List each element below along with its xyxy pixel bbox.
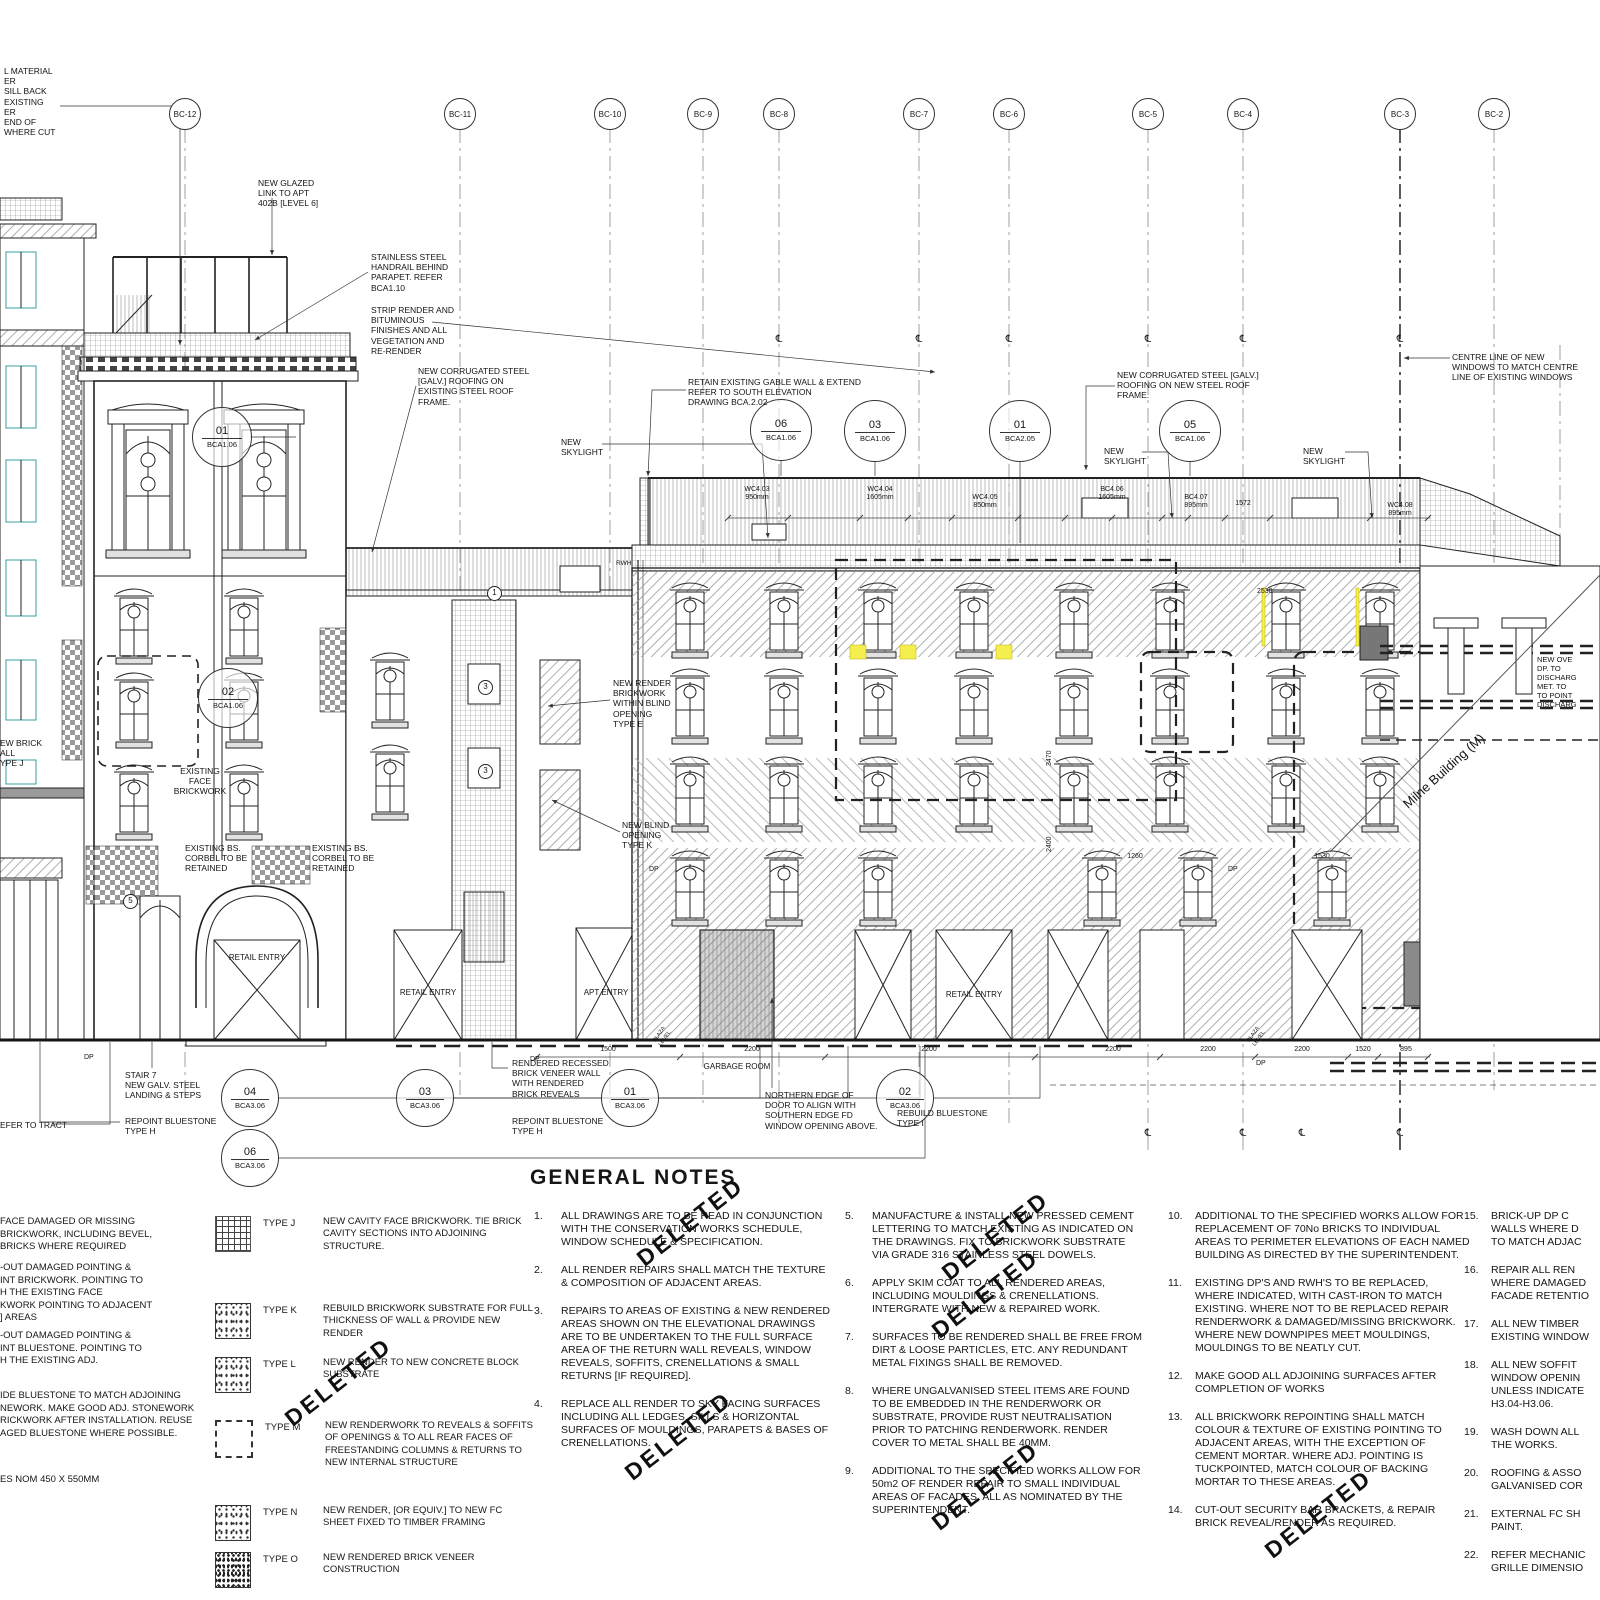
note-item: 9. ADDITIONAL TO THE SPECIFIED WORKS ALL…: [845, 1465, 1143, 1517]
note-text: ALL DRAWINGS ARE TO BE READ IN CONJUNCTI…: [561, 1210, 834, 1249]
general-notes-title: GENERAL NOTES: [530, 1166, 736, 1190]
note-text: ADDITIONAL TO THE SPECIFIED WORKS ALLOW …: [872, 1465, 1143, 1517]
note-number: 10.: [1168, 1210, 1195, 1262]
note-number: 6.: [845, 1277, 872, 1316]
legend-row: TYPE N NEW RENDER, [OR EQUIV.] TO NEW FC…: [215, 1505, 535, 1541]
left-note-block: -OUT DAMAGED POINTING & INT BRICKWORK. P…: [0, 1262, 152, 1325]
note-text: REPAIRS TO AREAS OF EXISTING & NEW RENDE…: [561, 1305, 834, 1383]
note-item: 20. ROOFING & ASSO GALVANISED COR: [1464, 1467, 1600, 1493]
legend-type-label: TYPE K: [263, 1303, 311, 1340]
note-number: 8.: [845, 1385, 872, 1450]
notes-column-1: 1. ALL DRAWINGS ARE TO BE READ IN CONJUN…: [534, 1210, 834, 1450]
note-text: REFER MECHANIC GRILLE DIMENSIO: [1491, 1549, 1586, 1575]
note-text: WHERE UNGALVANISED STEEL ITEMS ARE FOUND…: [872, 1385, 1143, 1450]
note-item: 1. ALL DRAWINGS ARE TO BE READ IN CONJUN…: [534, 1210, 834, 1249]
legend-description: NEW RENDER, [OR EQUIV.] TO NEW FC SHEET …: [323, 1505, 535, 1541]
note-item: 13. ALL BRICKWORK REPOINTING SHALL MATCH…: [1168, 1411, 1470, 1489]
legend-swatch: [215, 1552, 251, 1588]
legend-description: NEW RENDERED BRICK VENEER CONSTRUCTION: [323, 1552, 535, 1588]
note-item: 18. ALL NEW SOFFIT WINDOW OPENIN UNLESS …: [1464, 1359, 1600, 1411]
legend-swatch: [215, 1357, 251, 1393]
note-number: 21.: [1464, 1508, 1491, 1534]
note-item: 19. WASH DOWN ALL THE WORKS.: [1464, 1426, 1600, 1452]
left-note-block: IDE BLUESTONE TO MATCH ADJOINING NEWORK.…: [0, 1390, 194, 1440]
legend-swatch: [215, 1303, 251, 1339]
note-number: 20.: [1464, 1467, 1491, 1493]
note-item: 10. ADDITIONAL TO THE SPECIFIED WORKS AL…: [1168, 1210, 1470, 1262]
note-item: 6. APPLY SKIM COAT TO ALL RENDERED AREAS…: [845, 1277, 1143, 1316]
left-note-block: -OUT DAMAGED POINTING & INT BLUESTONE. P…: [0, 1330, 142, 1368]
legend-type-label: TYPE N: [263, 1505, 311, 1541]
note-text: REPAIR ALL REN WHERE DAMAGED FACADE RETE…: [1491, 1264, 1589, 1303]
legend-description: NEW RENDER TO NEW CONCRETE BLOCK SUBSTRA…: [323, 1357, 535, 1393]
note-item: 15. BRICK-UP DP C WALLS WHERE D TO MATCH…: [1464, 1210, 1600, 1249]
legend-description: NEW RENDERWORK TO REVEALS & SOFFITS OF O…: [325, 1420, 535, 1469]
note-text: MANUFACTURE & INSTALL NEW PRESSED CEMENT…: [872, 1210, 1143, 1262]
note-item: 3. REPAIRS TO AREAS OF EXISTING & NEW RE…: [534, 1305, 834, 1383]
legend-type-label: TYPE L: [263, 1357, 311, 1393]
legend-row: TYPE J NEW CAVITY FACE BRICKWORK. TIE BR…: [215, 1216, 535, 1253]
note-item: 21. EXTERNAL FC SH PAINT.: [1464, 1508, 1600, 1534]
note-text: ALL NEW SOFFIT WINDOW OPENIN UNLESS INDI…: [1491, 1359, 1584, 1411]
note-text: EXISTING DP'S AND RWH'S TO BE REPLACED, …: [1195, 1277, 1470, 1355]
deleted-stamp: DELETED: [280, 1332, 398, 1432]
note-number: 1.: [534, 1210, 561, 1249]
note-text: ALL BRICKWORK REPOINTING SHALL MATCH COL…: [1195, 1411, 1470, 1489]
legend-type-label: TYPE M: [265, 1420, 313, 1469]
note-number: 12.: [1168, 1370, 1195, 1396]
note-text: ALL NEW TIMBER EXISTING WINDOW: [1491, 1318, 1589, 1344]
note-number: 19.: [1464, 1426, 1491, 1452]
note-item: 11. EXISTING DP'S AND RWH'S TO BE REPLAC…: [1168, 1277, 1470, 1355]
legend-description: REBUILD BRICKWORK SUBSTRATE FOR FULL THI…: [323, 1303, 535, 1340]
note-item: 5. MANUFACTURE & INSTALL NEW PRESSED CEM…: [845, 1210, 1143, 1262]
note-text: APPLY SKIM COAT TO ALL RENDERED AREAS, I…: [872, 1277, 1143, 1316]
left-note-block: ES NOM 450 X 550MM: [0, 1474, 99, 1487]
note-text: WASH DOWN ALL THE WORKS.: [1491, 1426, 1579, 1452]
note-number: 16.: [1464, 1264, 1491, 1303]
note-number: 17.: [1464, 1318, 1491, 1344]
note-number: 7.: [845, 1331, 872, 1370]
note-number: 2.: [534, 1264, 561, 1290]
note-number: 5.: [845, 1210, 872, 1262]
note-number: 22.: [1464, 1549, 1491, 1575]
note-number: 9.: [845, 1465, 872, 1517]
note-text: REPLACE ALL RENDER TO SKY FACING SURFACE…: [561, 1398, 834, 1450]
note-number: 15.: [1464, 1210, 1491, 1249]
tower-facade: [86, 381, 346, 1046]
legend-description: NEW CAVITY FACE BRICKWORK. TIE BRICK CAV…: [323, 1216, 535, 1253]
note-text: ALL RENDER REPAIRS SHALL MATCH THE TEXTU…: [561, 1264, 834, 1290]
note-text: CUT-OUT SECURITY BAR BRACKETS, & REPAIR …: [1195, 1504, 1470, 1530]
note-text: BRICK-UP DP C WALLS WHERE D TO MATCH ADJ…: [1491, 1210, 1582, 1249]
legend-swatch: [215, 1505, 251, 1541]
note-text: SURFACES TO BE RENDERED SHALL BE FREE FR…: [872, 1331, 1143, 1370]
legend-swatch: [215, 1420, 253, 1458]
legend-row: TYPE K REBUILD BRICKWORK SUBSTRATE FOR F…: [215, 1303, 535, 1340]
legend-row: TYPE O NEW RENDERED BRICK VENEER CONSTRU…: [215, 1552, 535, 1588]
notes-column-4: 15. BRICK-UP DP C WALLS WHERE D TO MATCH…: [1464, 1210, 1600, 1575]
note-item: 12. MAKE GOOD ALL ADJOINING SURFACES AFT…: [1168, 1370, 1470, 1396]
left-neighbour-building: [0, 198, 96, 1040]
elevation-linework: [0, 0, 1600, 1170]
legend-type-label: TYPE O: [263, 1552, 311, 1588]
mid-band: [346, 548, 636, 1040]
architectural-elevation-sheet: BC-12 BC-11 BC-10 BC-9 BC-8 BC-7 BC-6 BC…: [0, 0, 1600, 1600]
legend-row: TYPE M NEW RENDERWORK TO REVEALS & SOFFI…: [215, 1420, 535, 1469]
tower-rooftop: [78, 257, 358, 381]
legend-row: TYPE L NEW RENDER TO NEW CONCRETE BLOCK …: [215, 1357, 535, 1393]
note-item: 8. WHERE UNGALVANISED STEEL ITEMS ARE FO…: [845, 1385, 1143, 1450]
note-number: 11.: [1168, 1277, 1195, 1355]
note-text: EXTERNAL FC SH PAINT.: [1491, 1508, 1580, 1534]
note-text: MAKE GOOD ALL ADJOINING SURFACES AFTER C…: [1195, 1370, 1470, 1396]
note-item: 22. REFER MECHANIC GRILLE DIMENSIO: [1464, 1549, 1600, 1575]
note-item: 7. SURFACES TO BE RENDERED SHALL BE FREE…: [845, 1331, 1143, 1370]
note-item: 4. REPLACE ALL RENDER TO SKY FACING SURF…: [534, 1398, 834, 1450]
note-item: 16. REPAIR ALL REN WHERE DAMAGED FACADE …: [1464, 1264, 1600, 1303]
left-note-block: FACE DAMAGED OR MISSING BRICKWORK, INCLU…: [0, 1216, 152, 1254]
note-item: 14. CUT-OUT SECURITY BAR BRACKETS, & REP…: [1168, 1504, 1470, 1530]
notes-column-2: 5. MANUFACTURE & INSTALL NEW PRESSED CEM…: [845, 1210, 1143, 1517]
note-number: 4.: [534, 1398, 561, 1450]
note-number: 3.: [534, 1305, 561, 1383]
legend-swatch: [215, 1216, 251, 1252]
note-number: 13.: [1168, 1411, 1195, 1489]
legend-type-label: TYPE J: [263, 1216, 311, 1253]
note-item: 17. ALL NEW TIMBER EXISTING WINDOW: [1464, 1318, 1600, 1344]
note-number: 14.: [1168, 1504, 1195, 1530]
note-text: ADDITIONAL TO THE SPECIFIED WORKS ALLOW …: [1195, 1210, 1470, 1262]
note-number: 18.: [1464, 1359, 1491, 1411]
note-item: 2. ALL RENDER REPAIRS SHALL MATCH THE TE…: [534, 1264, 834, 1290]
note-text: ROOFING & ASSO GALVANISED COR: [1491, 1467, 1583, 1493]
notes-column-3: 10. ADDITIONAL TO THE SPECIFIED WORKS AL…: [1168, 1210, 1470, 1530]
